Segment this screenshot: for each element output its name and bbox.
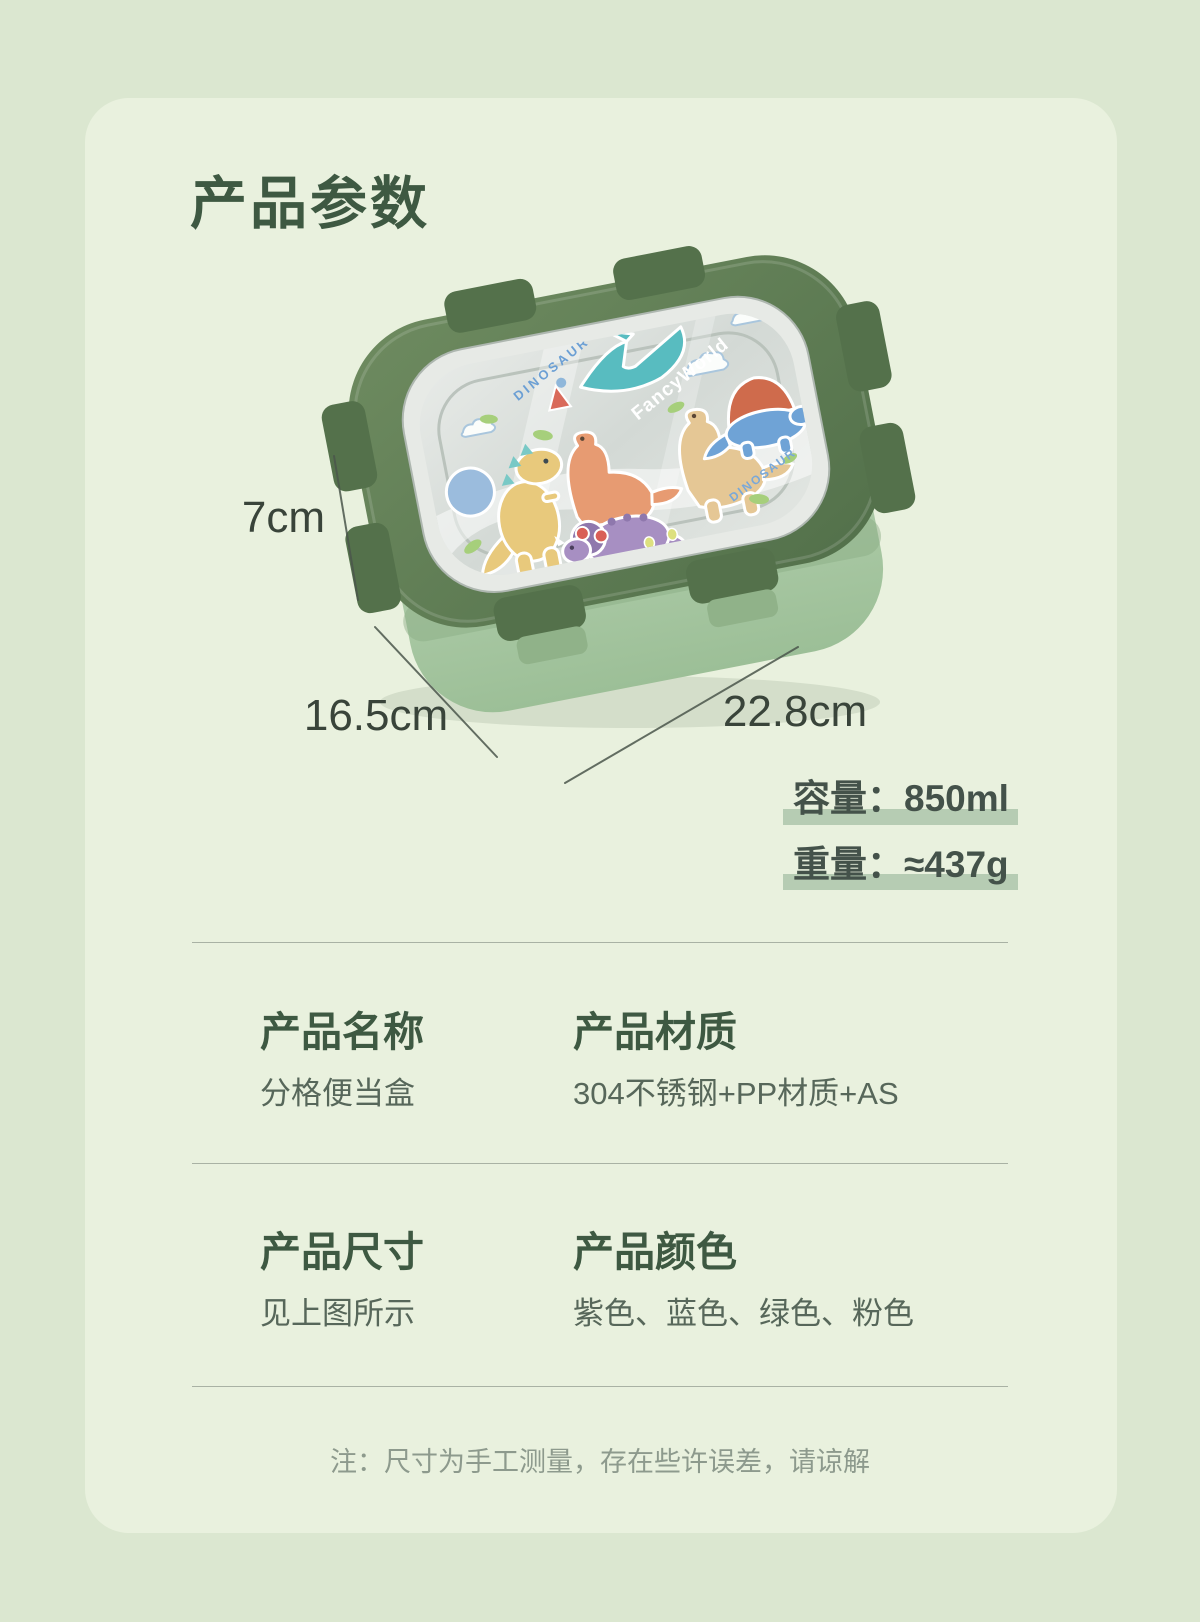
capacity-value: 850ml	[904, 778, 1009, 819]
spec-heading: 产品名称	[260, 1012, 424, 1053]
spec-value: 304不锈钢+PP材质+AS	[573, 1078, 899, 1109]
divider-top	[192, 942, 1008, 943]
spec-heading: 产品材质	[573, 1012, 899, 1053]
dimension-width-label: 16.5cm	[276, 694, 476, 738]
spec-product-color: 产品颜色 紫色、蓝色、绿色、粉色	[573, 1232, 914, 1329]
spec-value: 紫色、蓝色、绿色、粉色	[573, 1298, 914, 1329]
capacity-highlight: 容量：850ml	[783, 779, 1018, 825]
spec-heading: 产品颜色	[573, 1232, 914, 1273]
spec-product-name: 产品名称 分格便当盒	[260, 1012, 424, 1109]
weight-value: ≈437g	[904, 844, 1009, 885]
capacity-weight-block: 容量：850ml 重量：≈437g	[783, 779, 1018, 910]
dimension-length-label: 22.8cm	[695, 690, 895, 734]
page-background: 产品参数	[0, 0, 1200, 1622]
spec-value: 分格便当盒	[260, 1078, 424, 1109]
capacity-row: 容量：850ml	[783, 779, 1018, 825]
spec-product-size: 产品尺寸 见上图所示	[260, 1232, 424, 1329]
spec-heading: 产品尺寸	[260, 1232, 424, 1273]
spec-product-material: 产品材质 304不锈钢+PP材质+AS	[573, 1012, 899, 1109]
weight-label: 重量：	[793, 844, 904, 885]
page-title: 产品参数	[190, 158, 430, 240]
dimension-height-label: 7cm	[213, 496, 325, 540]
divider-bottom	[192, 1386, 1008, 1387]
weight-highlight: 重量：≈437g	[783, 845, 1018, 891]
weight-row: 重量：≈437g	[783, 845, 1018, 891]
capacity-label: 容量：	[793, 778, 904, 819]
spec-value: 见上图所示	[260, 1298, 424, 1329]
measurement-note: 注：尺寸为手工测量，存在些许误差，请谅解	[192, 1440, 1008, 1479]
divider-middle	[192, 1163, 1008, 1164]
